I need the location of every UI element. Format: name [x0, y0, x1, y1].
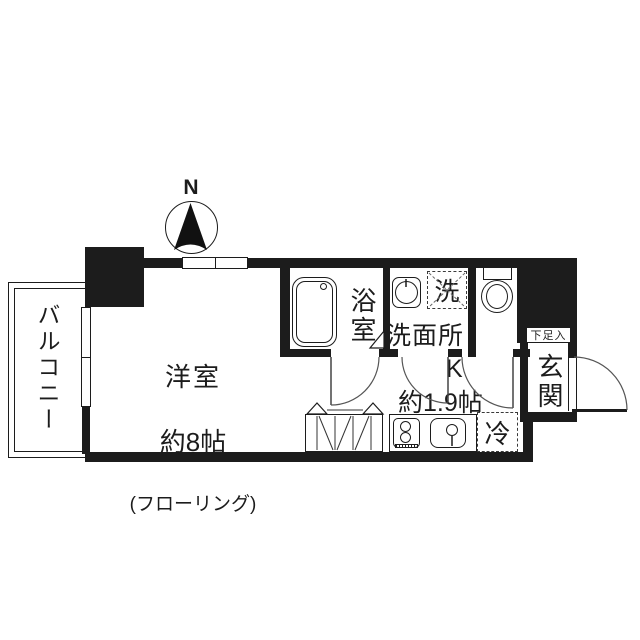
floor-plan: N バルコニー 洋室 約8帖 (フローリング) 浴室 洗 洗面所 — [0, 0, 640, 640]
compass-circle-icon — [165, 201, 218, 254]
kitchen-label: K — [446, 355, 463, 384]
pillar-top-left — [85, 247, 144, 307]
closet-door-triangle-left — [307, 403, 327, 414]
wall-entrance-bottom — [520, 412, 577, 422]
stove-grill — [395, 444, 418, 448]
toilet-tank — [483, 267, 512, 280]
main-room-name: 洋室 — [93, 362, 293, 392]
vanity-basin — [395, 281, 418, 304]
balcony-label: バルコニー — [30, 303, 64, 433]
wall-right-above-door — [568, 343, 577, 358]
entrance-door-opening — [568, 358, 577, 411]
entrance-label: 玄関 — [531, 353, 568, 411]
bathtub-drain — [320, 283, 327, 290]
toilet-bowl-inner — [486, 284, 508, 309]
wall-mid-seg4 — [513, 349, 530, 357]
main-room-labels: 洋室 約8帖 (フローリング) — [93, 326, 293, 552]
entrance-door-leaf — [572, 409, 627, 412]
kitchen-faucet — [446, 424, 458, 436]
stove-burner-2 — [400, 432, 411, 443]
closet-box — [305, 414, 383, 452]
washroom-label: 洗面所 — [386, 316, 464, 352]
closet-door-triangle-right — [363, 403, 383, 414]
wall-wash-toilet — [468, 258, 476, 357]
balcony-door-window-icon — [81, 307, 91, 407]
fridge-space-label: 冷 — [484, 414, 510, 451]
window-top-icon — [182, 257, 248, 269]
compass-north-label: N — [171, 176, 211, 200]
shoe-cabinet-box: 下足入 — [526, 327, 571, 343]
bathroom-label: 浴室 — [344, 287, 381, 345]
shoe-cabinet-label: 下足入 — [531, 327, 567, 343]
main-room-size: 約8帖 — [93, 428, 293, 457]
bathtub-inner — [296, 281, 333, 343]
fridge-space-box: 冷 — [477, 412, 518, 452]
washer-space-box: 洗 — [427, 271, 467, 309]
wall-left-lower — [82, 407, 90, 454]
washer-space-label: 洗 — [434, 272, 459, 308]
main-room-note: (フローリング) — [93, 493, 293, 516]
stove-burner-1 — [400, 421, 411, 432]
